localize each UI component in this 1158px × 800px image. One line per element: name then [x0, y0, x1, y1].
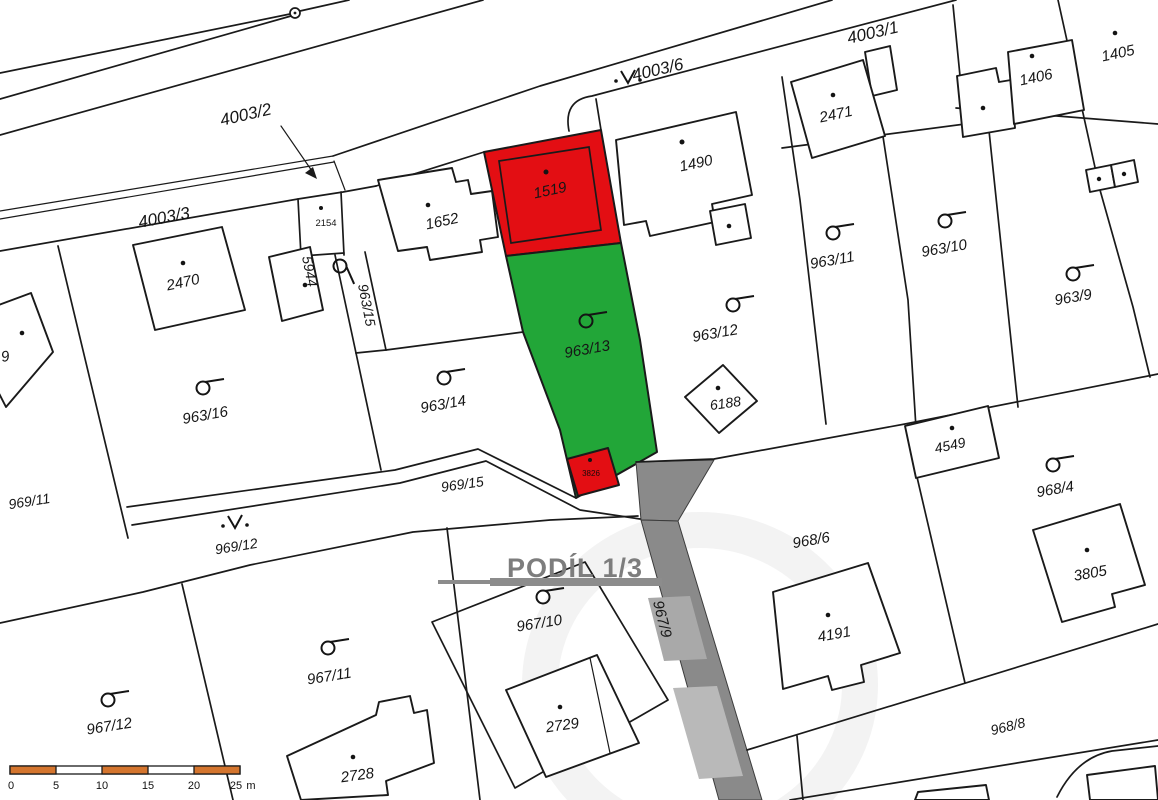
landuse-flag-icon: [322, 639, 350, 655]
building-dot: [20, 331, 25, 336]
landuse-flag-icon: [827, 224, 855, 240]
building-dot: [588, 458, 592, 462]
parcel-label-963-10: 963/10: [920, 236, 969, 261]
road-gray-triangle: [636, 460, 714, 521]
scale-tick: 5: [53, 780, 59, 792]
parcel-line: [298, 199, 301, 256]
parcel-label-968-4: 968/4: [1035, 478, 1075, 501]
parcel-label-963-15: 963/15: [355, 283, 379, 328]
scale-tick: 10: [96, 780, 108, 792]
parcel-label-963-11: 963/11: [809, 248, 856, 273]
road-label-969-15: 969/15: [440, 473, 485, 495]
building-bottom-corner: [1087, 766, 1158, 800]
road-line: [300, 0, 349, 11]
scale-bar-segment: [194, 766, 240, 774]
strip-line: [334, 161, 345, 190]
parcel-label-967-11: 967/11: [306, 665, 353, 689]
building-label-1405: 1405: [1100, 42, 1137, 66]
building-bottom-sliver: [915, 785, 989, 800]
building-dot: [319, 206, 323, 210]
parcel-line: [58, 246, 128, 538]
building-dot: [1122, 172, 1126, 176]
culvert-v-icon: [221, 515, 249, 528]
building-dot: [181, 261, 186, 266]
parcel-label-963-9: 963/9: [1053, 286, 1094, 309]
building-dot: [831, 93, 836, 98]
building-dot: [1030, 54, 1035, 59]
landuse-flag-icon: [727, 296, 755, 312]
landuse-flag-icon: [438, 369, 466, 385]
parcel-line: [356, 353, 381, 470]
landuse-flag-icon: [1047, 456, 1075, 472]
arrow-pointer-icon: [281, 126, 317, 179]
building-dot: [544, 170, 549, 175]
parcel-line: [447, 528, 480, 800]
landuse-flag-icon: [332, 257, 354, 288]
road-label-4003-1: 4003/1: [845, 18, 900, 48]
building-dot: [716, 386, 721, 391]
building-dot: [351, 755, 356, 760]
scale-unit: m: [246, 780, 255, 792]
building-dot: [1113, 31, 1118, 36]
parcel-label-967-12: 967/12: [85, 714, 134, 738]
building-3805: [1033, 504, 1145, 622]
parcel-label-963-14: 963/14: [419, 392, 467, 417]
building-dot: [426, 203, 431, 208]
survey-point-dot: [294, 12, 297, 15]
road-line: [0, 16, 291, 99]
scale-tick: 15: [142, 780, 154, 792]
scale-bar: 0 5 10 15 20 25 m: [8, 766, 256, 792]
parcel-line: [356, 350, 386, 353]
map-canvas: 4003/2 4003/3 4003/6 4003/1 2470 2154 59…: [0, 0, 1158, 800]
scale-bar-segment: [102, 766, 148, 774]
strip-line: [0, 156, 333, 211]
road-label-4003-2: 4003/2: [218, 99, 273, 129]
building-dot: [1085, 548, 1090, 553]
road-label-969-11: 969/11: [7, 490, 51, 512]
parcel-line: [386, 332, 523, 350]
road-label-4003-6: 4003/6: [630, 54, 685, 84]
building-label-2154: 2154: [315, 218, 336, 229]
scale-tick: 25: [230, 780, 242, 792]
parcel-line: [953, 5, 960, 76]
landuse-flag-icon: [939, 212, 967, 228]
share-underline: [438, 580, 498, 584]
building-dot: [727, 224, 732, 229]
road-label-969-12: 969/12: [214, 535, 259, 558]
road-line: [0, 14, 290, 73]
building-dot: [1097, 177, 1101, 181]
road-label-968-8: 968/8: [989, 714, 1027, 738]
arrow-head: [305, 167, 317, 179]
building-dot: [981, 106, 986, 111]
share-underline: [490, 578, 662, 586]
building-dot: [680, 140, 685, 145]
cadastral-map: 4003/2 4003/3 4003/6 4003/1 2470 2154 59…: [0, 0, 1158, 800]
building-dot: [950, 426, 955, 431]
scale-tick: 0: [8, 780, 14, 792]
landuse-flag-icon: [197, 379, 225, 395]
road-line: [127, 449, 576, 507]
parcel-label-3826: 3826: [582, 469, 600, 478]
parcel-label-968-6: 968/6: [791, 529, 832, 552]
scale-bar-segment: [10, 766, 56, 774]
building-small-1406-west: [957, 68, 1015, 137]
road-label-4003-3: 4003/3: [137, 203, 192, 232]
parcel-line: [882, 130, 916, 428]
parcel-line: [341, 192, 344, 255]
parcel-line: [988, 121, 1018, 407]
parcel-line: [596, 99, 601, 130]
scale-tick: 20: [188, 780, 200, 792]
building-2728: [287, 696, 434, 800]
building-dot: [826, 613, 831, 618]
landuse-flag-icon: [102, 691, 130, 707]
share-overlay: PODÍL 1/3: [438, 552, 662, 586]
building-dot: [558, 705, 563, 710]
parcel-label-963-16: 963/16: [181, 403, 230, 428]
landuse-flag-icon: [1067, 265, 1095, 281]
parcel-label-963-12: 963/12: [691, 321, 740, 346]
road-line-rounded: [568, 0, 956, 131]
